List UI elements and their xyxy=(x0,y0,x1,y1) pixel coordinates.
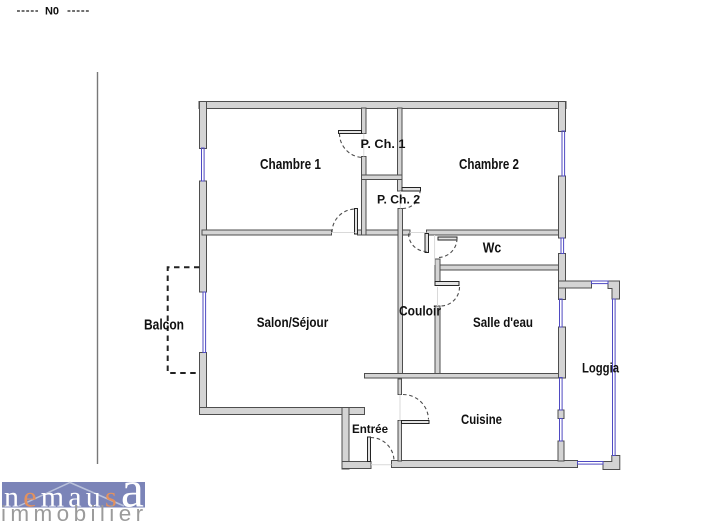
svg-text:P. Ch. 2: P. Ch. 2 xyxy=(377,195,420,207)
svg-text:Salle d'eau: Salle d'eau xyxy=(473,314,533,330)
svg-text:Loggia: Loggia xyxy=(582,360,619,376)
svg-text:Wc: Wc xyxy=(483,240,502,257)
svg-text:P. Ch. 1: P. Ch. 1 xyxy=(361,139,407,151)
svg-text:Couloir: Couloir xyxy=(399,303,441,319)
svg-text:N0: N0 xyxy=(45,6,59,18)
svg-text:Entrée: Entrée xyxy=(352,424,388,436)
svg-text:Balcon: Balcon xyxy=(144,317,184,334)
svg-text:immobilier: immobilier xyxy=(1,501,148,526)
svg-text:Chambre 1: Chambre 1 xyxy=(260,156,321,173)
svg-text:Cuisine: Cuisine xyxy=(461,411,502,427)
svg-text:Salon/Séjour: Salon/Séjour xyxy=(257,314,329,330)
svg-text:Chambre 2: Chambre 2 xyxy=(459,156,519,173)
